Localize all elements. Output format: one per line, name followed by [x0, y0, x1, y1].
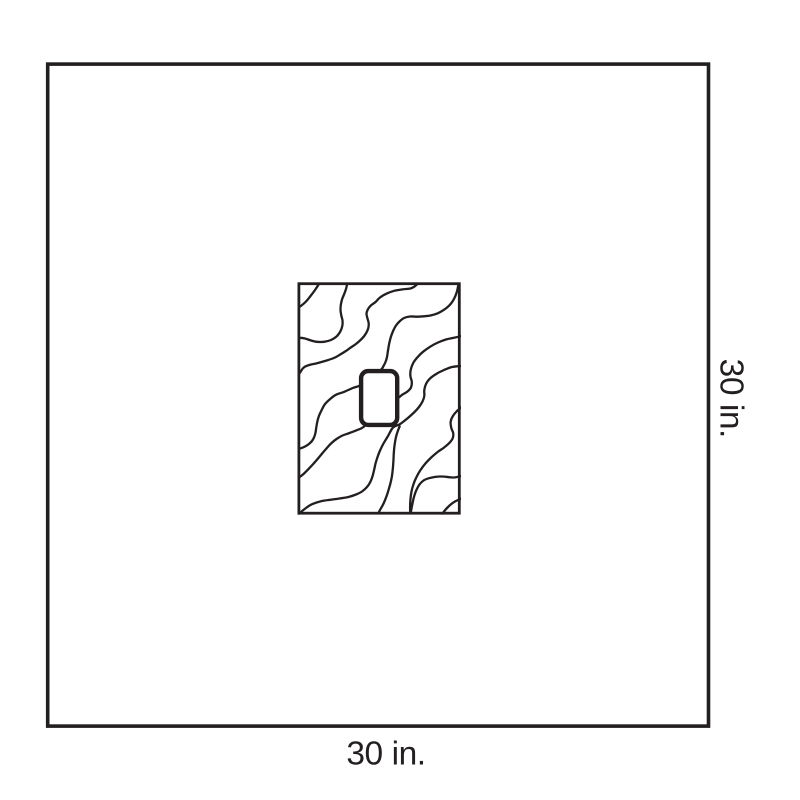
svg-text:30 in.: 30 in.	[346, 735, 425, 772]
svg-text:30 in.: 30 in.	[713, 359, 750, 438]
